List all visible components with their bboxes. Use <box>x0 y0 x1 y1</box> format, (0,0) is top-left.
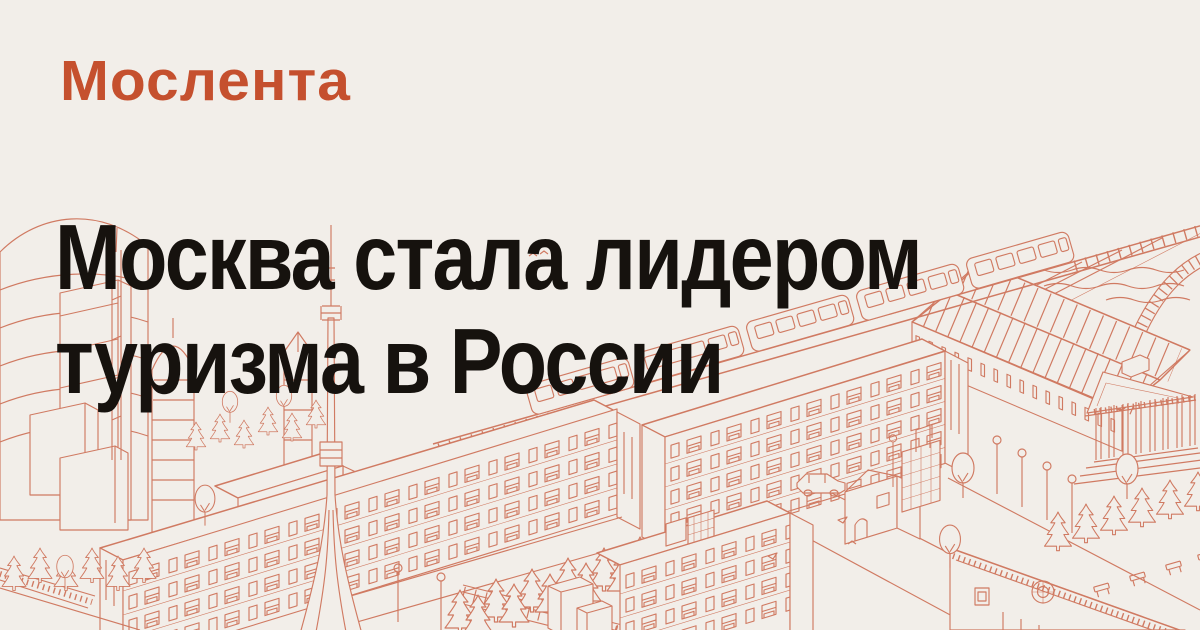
article-headline: Москва стала лидером туризма в России <box>55 205 921 413</box>
headline-line-1: Москва стала лидером <box>55 205 921 309</box>
headline-line-2: туризма в России <box>55 309 921 413</box>
park-fir-row-right <box>1045 472 1200 551</box>
share-card: Мослента Москва стала лидером туризма в … <box>0 0 1200 630</box>
classical-facade <box>950 548 1185 630</box>
brand-logo: Мослента <box>60 48 351 114</box>
benches <box>1094 551 1200 598</box>
